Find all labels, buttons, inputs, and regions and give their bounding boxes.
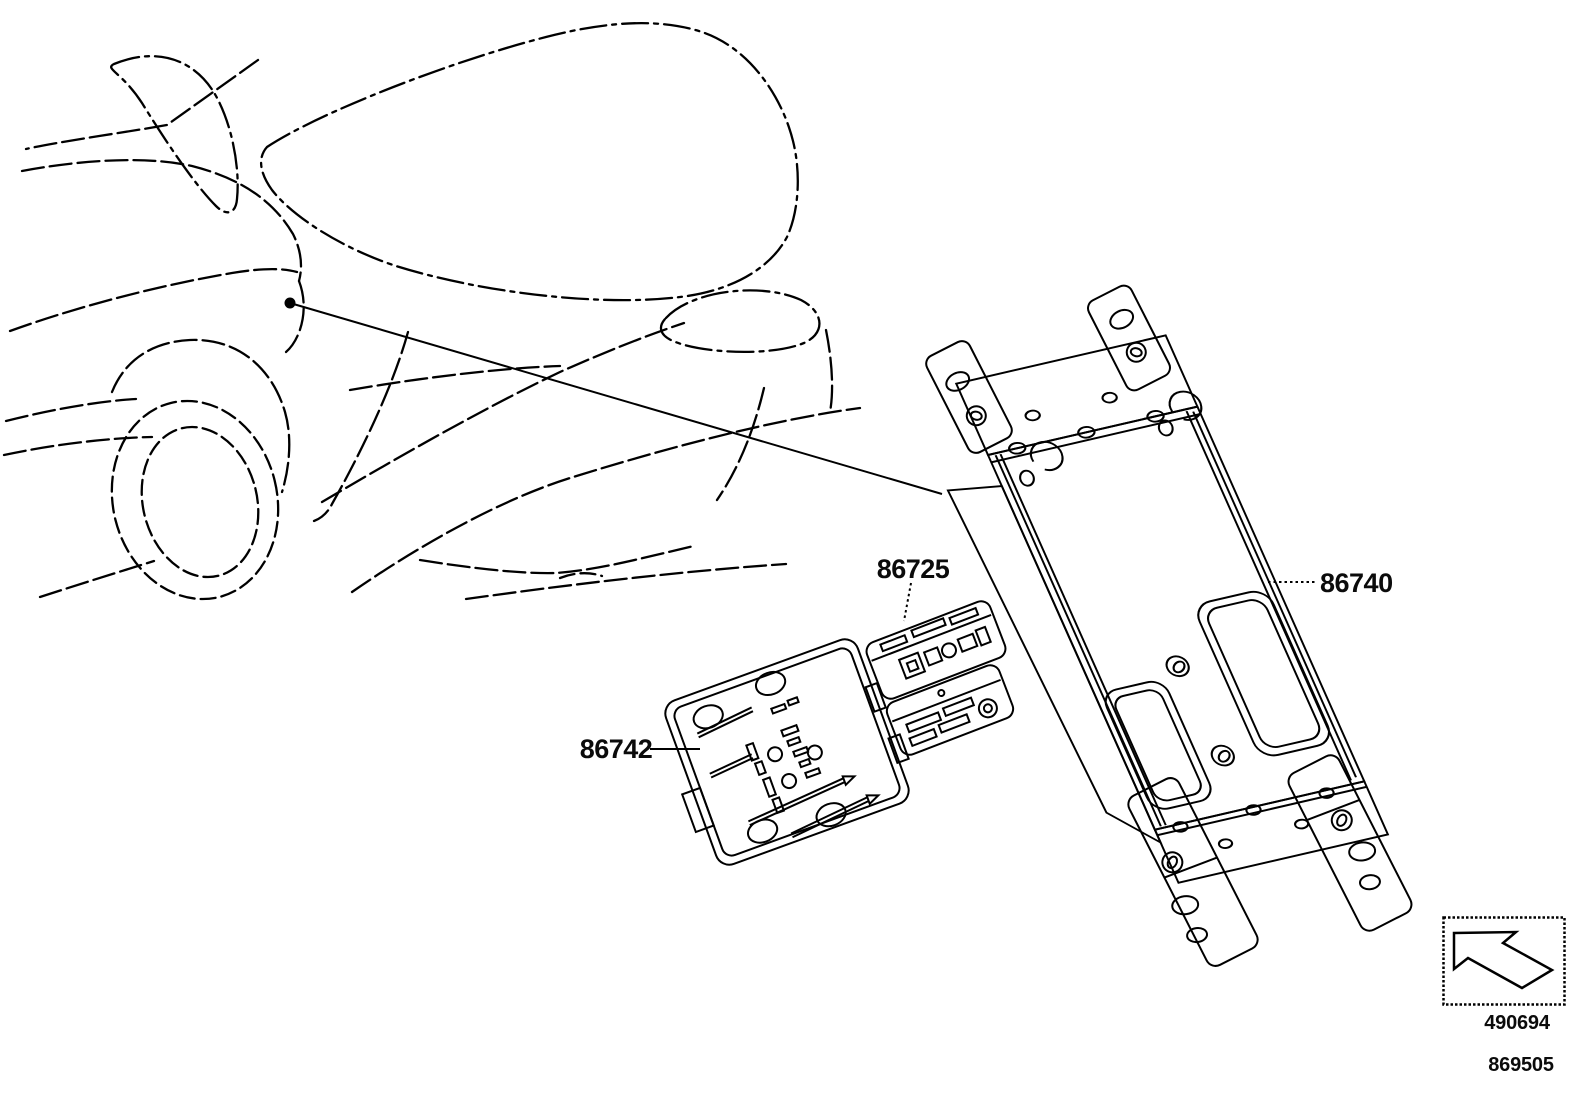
car-rear-panel-edge (717, 388, 764, 500)
bracket-top-panel (956, 335, 1197, 455)
car-rocker-line-2 (4, 437, 152, 455)
part-86742-module (651, 632, 922, 872)
module-hatch-strips (693, 677, 881, 856)
car-bumper-lower (420, 546, 694, 573)
leader-86725 (904, 583, 911, 621)
car-outline (4, 23, 860, 617)
module-label-markings (737, 696, 837, 815)
leader-line-car (290, 303, 942, 494)
bracket-left-ear (923, 338, 1015, 456)
parts-diagram-canvas: 86725 86740 86742 490694 869505 (0, 0, 1592, 1099)
car-taillight (661, 290, 819, 351)
car-rear-glass (261, 23, 798, 300)
direction-indicator (1444, 918, 1565, 1005)
car-body-side-edge (826, 330, 832, 412)
module-left-tab (682, 788, 714, 832)
direction-box-code: 490694 (1484, 1012, 1551, 1034)
bracket-recess-right (1192, 588, 1334, 759)
car-bumper-bottom (466, 564, 786, 599)
car-lower-left-line (40, 561, 154, 597)
car-exhaust-detail (560, 573, 602, 578)
module-plate-outline (661, 635, 912, 868)
bracket-screw-1 (1163, 654, 1192, 678)
bracket-right-ear (1085, 283, 1173, 394)
car-pillar-drop (286, 281, 304, 352)
parts-diagram-page: 86725 86740 86742 490694 869505 (0, 0, 1592, 1099)
part-label-86740[interactable]: 86740 (1320, 568, 1393, 598)
car-tire-outer (91, 383, 299, 617)
bracket-screw-2 (1208, 744, 1237, 768)
car-rocker-line-1 (6, 399, 136, 421)
part-86725-receiver (864, 598, 1016, 757)
car-quarter-window (111, 56, 238, 212)
part-label-86725[interactable]: 86725 (877, 554, 950, 584)
car-wheel-arch (112, 340, 289, 492)
car-door-edge (314, 332, 408, 521)
car-spoiler-edge (322, 323, 684, 502)
bracket-side-wall (948, 479, 1161, 854)
car-pillar-line (22, 160, 301, 281)
part-label-86742[interactable]: 86742 (580, 734, 653, 764)
figure-number: 869505 (1488, 1054, 1554, 1076)
car-shoulder-line (10, 269, 297, 331)
